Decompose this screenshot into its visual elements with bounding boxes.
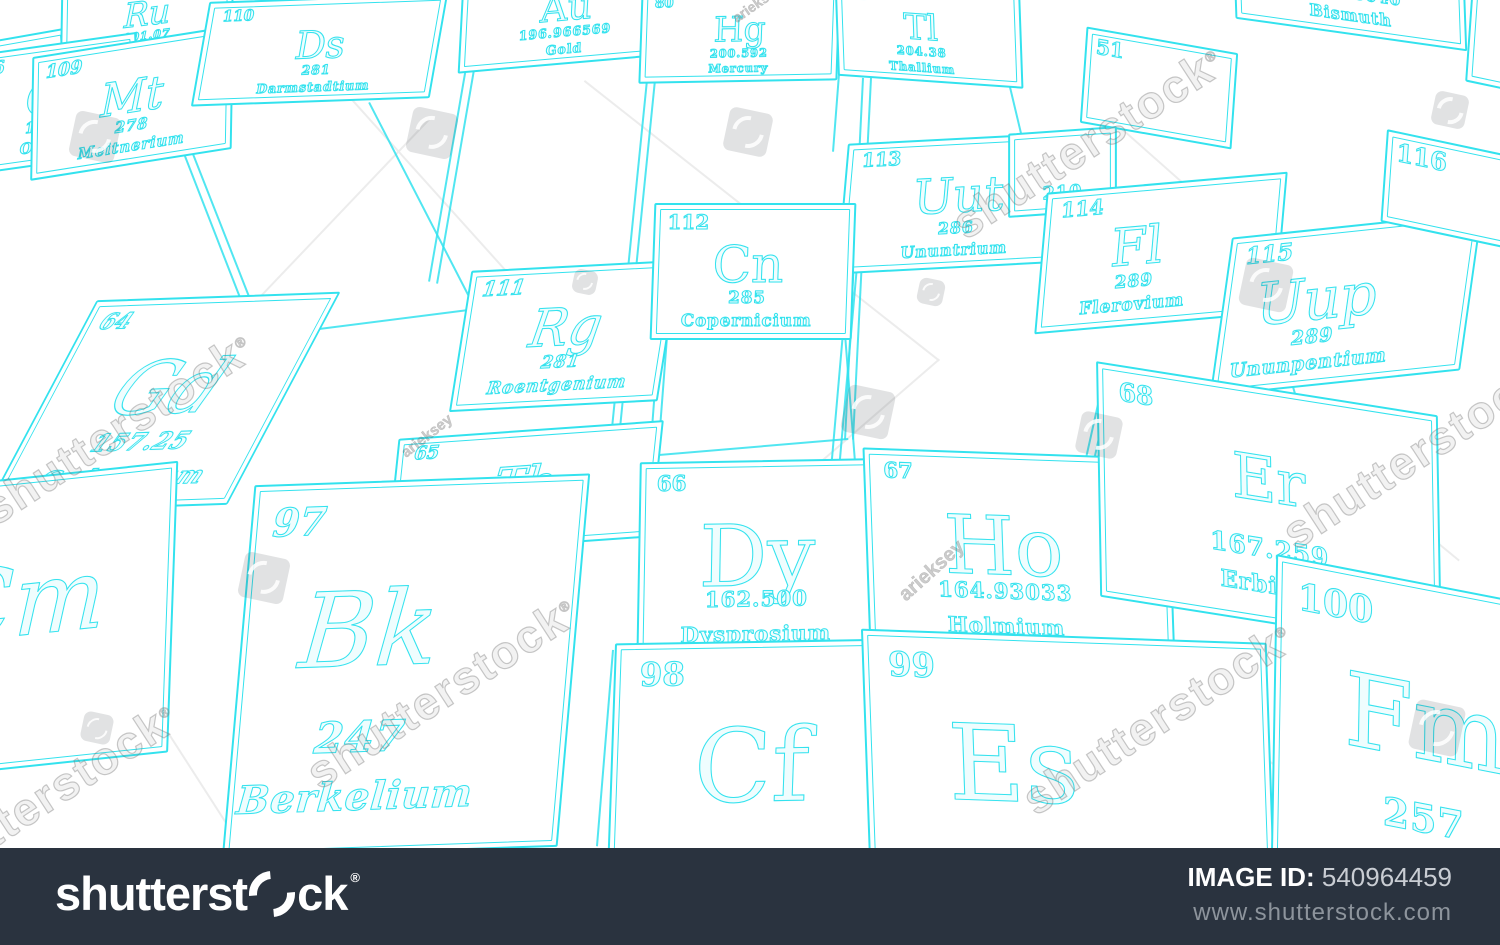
tile-atomic-number: 110 — [221, 6, 255, 25]
shutter-glyph-icon — [1412, 703, 1461, 752]
shutterstock-logomark-watermark-icon — [237, 551, 292, 606]
image-id-line: IMAGE ID: 540964459 — [1188, 862, 1452, 893]
box-edge-line — [436, 64, 476, 284]
registered-mark: ® — [350, 870, 359, 885]
shutterstock-logomark-watermark-icon — [79, 710, 115, 746]
shutter-glyph-icon — [241, 555, 287, 601]
tile-atomic-number: 113 — [861, 148, 902, 172]
shutter-glyph-icon — [409, 110, 455, 156]
element-tile-ds: 110Ds281Darmstadtium — [191, 0, 448, 107]
element-tile-cn: 112Cn285Copernicium — [650, 203, 857, 340]
tile-symbol: Cm — [0, 538, 174, 667]
element-tile-fm: 100Fm257 — [1270, 554, 1500, 848]
shutter-glyph-icon — [1077, 413, 1120, 456]
tile-atomic-number: 76 — [0, 57, 5, 80]
tile-atomic-mass: 285 — [648, 287, 847, 307]
shutter-glyph-icon — [1242, 261, 1290, 309]
image-id-label: IMAGE ID: — [1188, 862, 1315, 892]
shutterstock-logomark-watermark-icon — [916, 277, 947, 308]
tile-symbol: Cn — [648, 240, 848, 291]
tile-atomic-number: 66 — [657, 472, 687, 498]
shutter-glyph-icon — [72, 114, 118, 160]
shutter-o-icon — [240, 861, 305, 926]
site-url: www.shutterstock.com — [1188, 899, 1452, 927]
shutterstock-bottom-bar: shutterst ck ® IMAGE ID: 540964459 www.s… — [0, 848, 1500, 945]
tile-atomic-number: 64 — [94, 309, 137, 336]
shutterstock-logomark-watermark-icon — [1407, 698, 1466, 757]
shutterstock-logomark-watermark-icon — [1074, 410, 1124, 460]
tile-atomic-number: 81 — [848, 0, 868, 3]
image-meta: IMAGE ID: 540964459 www.shutterstock.com — [1188, 862, 1452, 927]
box-edge-line — [428, 62, 468, 282]
shutter-glyph-icon — [844, 388, 892, 436]
logo-text-right: ck — [297, 866, 347, 921]
element-tile-rg: 111Rg281Roentgenium — [449, 260, 680, 412]
tile-atomic-number: 97 — [271, 499, 329, 546]
shutterstock-logomark-watermark-icon — [722, 106, 774, 158]
shutter-glyph-icon — [726, 110, 771, 155]
stock-image-preview: TcRu101.07Ruthenium76Os190.23Osmium109Mt… — [0, 0, 1500, 945]
tile-atomic-number: 67 — [883, 458, 913, 484]
tile-atomic-number: 99 — [888, 643, 936, 685]
tile-atomic-number: 68 — [1119, 376, 1154, 412]
tile-atomic-number: 109 — [46, 56, 83, 83]
shutter-glyph-icon — [918, 279, 943, 304]
shutter-glyph-icon — [573, 270, 597, 294]
logo-text-left: shutterst — [55, 866, 247, 921]
shutterstock-logomark-watermark-icon — [405, 106, 460, 161]
shutterstock-logomark-watermark-icon — [840, 384, 897, 441]
image-id-value: 540964459 — [1322, 862, 1452, 892]
tile-element-name: Copernicium — [647, 310, 846, 330]
tile-atomic-number: 112 — [667, 210, 709, 234]
shutterstock-logomark-watermark-icon — [1238, 257, 1295, 314]
tile-atomic-number: 114 — [1060, 195, 1105, 223]
periodic-table-3d-artwork: TcRu101.07Ruthenium76Os190.23Osmium109Mt… — [0, 0, 1500, 848]
element-tile-tl: 81Tl204.38Thallium — [835, 0, 1024, 89]
tile-atomic-mass: 200.592 — [641, 44, 836, 61]
shutterstock-logomark-watermark-icon — [1430, 90, 1470, 130]
shutter-glyph-icon — [83, 714, 111, 742]
tile-atomic-number: 80 — [655, 0, 674, 11]
tile-atomic-number: 51 — [1095, 34, 1124, 63]
tile-atomic-number: 98 — [639, 655, 685, 694]
box-edge-line — [832, 74, 840, 152]
tile-atomic-mass: 162.500 — [627, 585, 885, 615]
element-tile-bi: 208.98040Bismuth — [1231, 0, 1467, 51]
tile-element-name: Mercury — [641, 59, 836, 76]
shutterstock-logomark-watermark-icon — [68, 110, 123, 165]
tile-atomic-number: 116 — [1396, 137, 1448, 177]
element-tile-pofrag — [1465, 0, 1500, 118]
shutterstock-logo: shutterst ck ® — [55, 866, 359, 921]
shutter-glyph-icon — [1432, 92, 1469, 129]
tile-atomic-number: 100 — [1297, 574, 1373, 633]
tile-atomic-number: 111 — [481, 275, 527, 301]
